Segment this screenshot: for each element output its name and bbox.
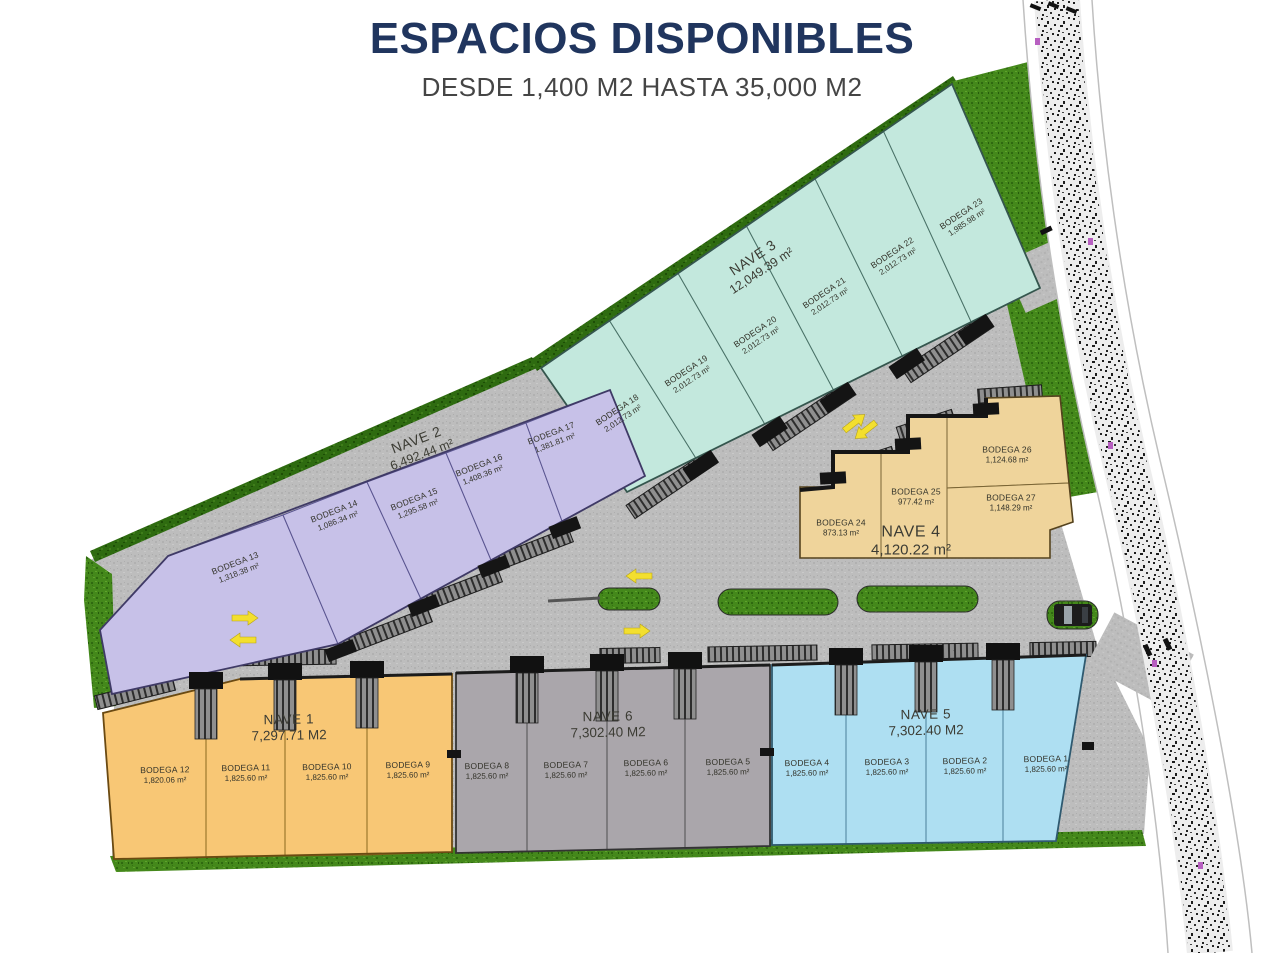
bodega-2-label: BODEGA 21,825.60 m² (943, 755, 988, 776)
bodega-1-label: BODEGA 11,825.60 m² (1024, 753, 1069, 774)
nave-5-title: NAVE 57,302.40 M2 (888, 706, 964, 740)
bodega-11-label: BODEGA 111,825.60 m² (221, 762, 270, 783)
bodega-27-label: BODEGA 271,148.29 m² (986, 493, 1036, 514)
site-plan-graphics (0, 0, 1284, 953)
bodega-24-label: BODEGA 24873.13 m² (816, 518, 866, 539)
bodega-26-label: BODEGA 261,124.68 m² (982, 445, 1032, 466)
bodega-4-label: BODEGA 41,825.60 m² (785, 757, 830, 778)
bodega-12-label: BODEGA 121,820.06 m² (140, 764, 190, 785)
bodega-6-label: BODEGA 61,825.60 m² (624, 757, 669, 778)
bodega-2-cell[interactable] (926, 658, 1003, 843)
bodega-10-label: BODEGA 101,825.60 m² (302, 761, 352, 782)
bodega-5-label: BODEGA 51,825.60 m² (706, 756, 751, 777)
bodega-7-label: BODEGA 71,825.60 m² (544, 759, 589, 780)
bodega-3-cell[interactable] (846, 660, 926, 844)
nave-1-title: NAVE 17,297.71 M2 (251, 711, 327, 745)
bodega-8-label: BODEGA 81,825.60 m² (465, 760, 510, 781)
bodega-3-label: BODEGA 31,825.60 m² (865, 756, 910, 777)
site-plan: ESPACIOS DISPONIBLES DESDE 1,400 M2 HAST… (0, 0, 1284, 953)
bodega-9-label: BODEGA 91,825.60 m² (386, 759, 431, 780)
nave-6-title: NAVE 67,302.40 M2 (570, 708, 646, 742)
truck (1054, 604, 1092, 626)
nave-4-title: NAVE 44,120.22 m² (871, 522, 951, 559)
bodega-25-label: BODEGA 25977.42 m² (891, 487, 941, 508)
